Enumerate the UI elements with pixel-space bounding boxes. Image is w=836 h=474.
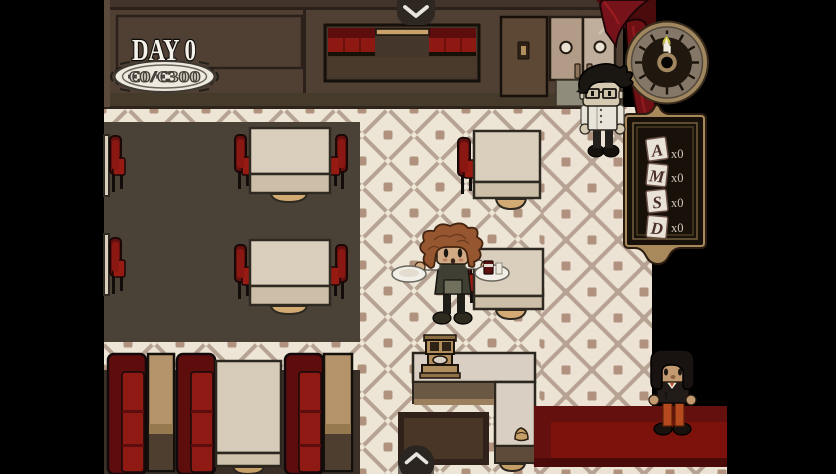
svg-text:S: S (651, 193, 662, 213)
svg-text:x0: x0 (671, 221, 684, 235)
svg-text:x0: x0 (671, 147, 684, 161)
svg-text:€0/€300: €0/€300 (129, 69, 201, 86)
svg-text:x0: x0 (671, 171, 684, 185)
svg-text:D: D (649, 218, 664, 238)
svg-text:x0: x0 (671, 196, 684, 210)
svg-text:A: A (649, 140, 664, 161)
svg-text:M: M (647, 166, 666, 187)
